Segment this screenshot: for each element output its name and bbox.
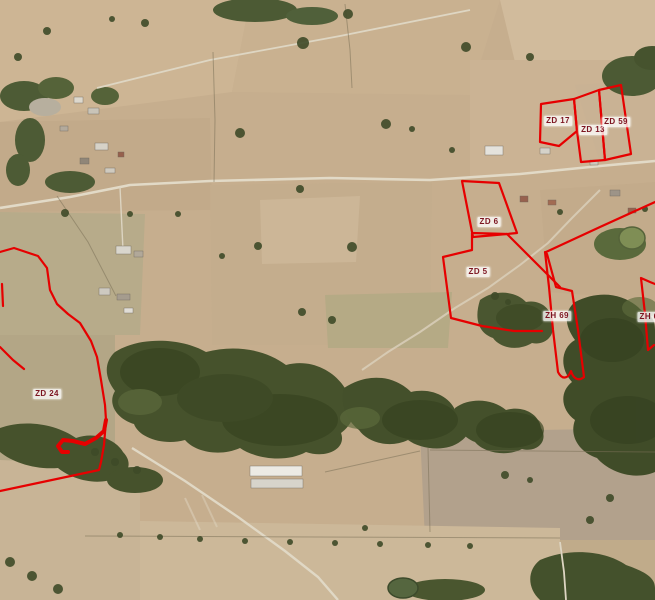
wood-blob — [6, 154, 30, 186]
aerial-map[interactable]: ZD 17ZD 13ZD 59ZD 6ZD 5ZH 69ZH 6ZD 24 — [0, 0, 655, 600]
building — [610, 190, 620, 196]
tree — [298, 308, 306, 316]
building — [118, 152, 124, 157]
parcel-boundary-fragment[interactable] — [2, 284, 3, 306]
building — [60, 126, 68, 131]
tree — [347, 242, 357, 252]
tree — [5, 557, 15, 567]
building — [88, 108, 99, 114]
parcel-label-zh6[interactable]: ZH 6 — [638, 312, 655, 322]
bare-mound — [29, 98, 61, 116]
tree — [527, 477, 533, 483]
building — [548, 200, 556, 205]
wood-shade — [496, 304, 544, 332]
field — [260, 196, 360, 264]
field — [325, 292, 452, 348]
tree — [505, 299, 511, 305]
tree — [14, 53, 22, 61]
tree — [461, 42, 471, 52]
tree — [242, 538, 248, 544]
wood-light — [118, 389, 162, 415]
pond — [619, 227, 645, 249]
field — [500, 0, 655, 62]
wood-shade — [580, 318, 644, 362]
building — [485, 146, 503, 155]
tree — [117, 532, 123, 538]
tree — [449, 147, 455, 153]
tree — [425, 542, 431, 548]
tree — [586, 516, 594, 524]
building — [124, 308, 133, 313]
wood-blob — [91, 87, 119, 105]
building — [105, 168, 115, 173]
wood-blob — [286, 7, 338, 25]
wood-light — [340, 407, 380, 429]
tree — [343, 9, 353, 19]
wood-shade — [382, 400, 458, 440]
tree — [332, 540, 338, 546]
tree — [297, 37, 309, 49]
pond — [388, 578, 418, 598]
tree — [133, 466, 141, 474]
tree — [606, 494, 614, 502]
building — [95, 143, 108, 150]
tree — [111, 458, 119, 466]
parcel-label-zd24[interactable]: ZD 24 — [33, 389, 61, 399]
building — [520, 196, 528, 202]
building — [99, 288, 110, 295]
tree — [362, 525, 368, 531]
building — [250, 466, 302, 476]
tree — [175, 211, 181, 217]
tree — [27, 571, 37, 581]
tree — [127, 211, 133, 217]
building — [74, 97, 83, 103]
aerial-imagery — [0, 0, 655, 600]
building — [80, 158, 89, 164]
parcel-label-zd5[interactable]: ZD 5 — [467, 267, 490, 277]
tree — [219, 253, 225, 259]
tree — [287, 539, 293, 545]
tree — [501, 471, 509, 479]
tree — [157, 534, 163, 540]
building — [134, 251, 143, 257]
tree — [377, 541, 383, 547]
tree — [557, 209, 563, 215]
wood-blob — [38, 77, 74, 99]
parcel-label-zh69[interactable]: ZH 69 — [543, 311, 571, 321]
wood-blob — [45, 171, 95, 193]
wood-shade — [476, 412, 544, 448]
building — [117, 294, 130, 300]
tree — [61, 209, 69, 217]
tree — [235, 128, 245, 138]
tree — [109, 16, 115, 22]
tree — [91, 448, 99, 456]
tree — [409, 126, 415, 132]
tree — [328, 316, 336, 324]
tree — [197, 536, 203, 542]
building — [251, 479, 303, 488]
parcel-label-zd17[interactable]: ZD 17 — [544, 116, 572, 126]
tree — [43, 27, 51, 35]
parcel-label-zd6[interactable]: ZD 6 — [478, 217, 501, 227]
wood-shade — [177, 374, 273, 422]
tree — [526, 53, 534, 61]
building — [540, 148, 550, 154]
field — [80, 520, 560, 600]
building — [116, 246, 131, 254]
tree — [381, 119, 391, 129]
tree — [254, 242, 262, 250]
parcel-label-zd59[interactable]: ZD 59 — [602, 117, 630, 127]
tree — [467, 543, 473, 549]
tree — [141, 19, 149, 27]
tree — [53, 584, 63, 594]
tree — [296, 185, 304, 193]
tree — [491, 292, 499, 300]
